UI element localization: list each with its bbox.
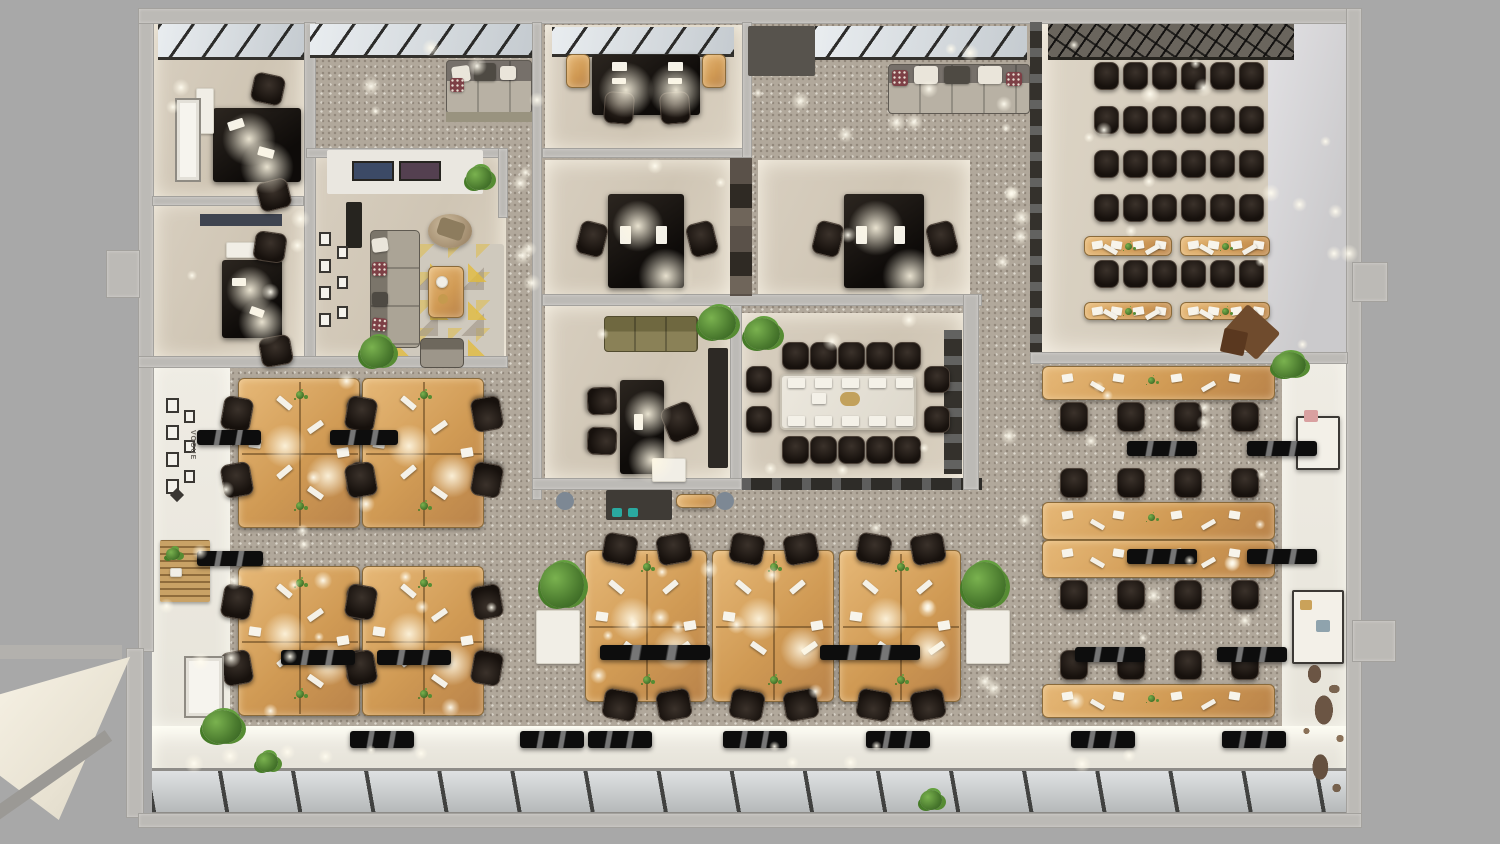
ceiling-light-5-8 <box>1084 434 1098 448</box>
training-east-wallface <box>1268 22 1352 356</box>
screen-bar-r6 <box>1217 647 1287 662</box>
ceiling-light-11-0 <box>1328 204 1343 219</box>
workstation-cluster-a4-monitor-1 <box>400 583 417 599</box>
training-chair-row-2-3 <box>1152 106 1177 134</box>
workstation-cluster-a4 <box>362 566 484 716</box>
ceiling-light-9-4 <box>262 283 280 301</box>
ceiling-light-9-2 <box>290 238 305 253</box>
ceiling-light-5-0 <box>1196 415 1212 431</box>
ceiling-light-3-12 <box>441 698 460 717</box>
ceiling-light-2-2 <box>512 174 530 192</box>
ceiling-light-0-7 <box>753 88 764 99</box>
ceiling-light-10-7 <box>836 464 848 476</box>
west-wall-frame-a-3 <box>166 452 179 467</box>
screen-bar-m2 <box>820 645 920 660</box>
ceiling-light-10-9 <box>901 312 917 328</box>
lounge-gallery-frame-a-2 <box>319 259 331 273</box>
ceiling-light-7-3 <box>191 652 210 671</box>
lounge-pillow-2 <box>372 262 387 276</box>
workstation-cluster-a2-chair-3 <box>469 395 504 434</box>
workstation-cluster-b3-chair-4 <box>908 687 947 722</box>
ceiling-light-4-5 <box>656 566 668 578</box>
screen-bar-r4 <box>1247 549 1317 564</box>
ceiling-light-8-1 <box>184 754 204 774</box>
ceiling-light-0-11 <box>905 113 923 131</box>
ceiling-light-4-14 <box>808 684 823 699</box>
ceiling-light-4-8 <box>627 618 640 631</box>
office-mid-left-glow-2 <box>638 248 694 304</box>
desk-strip-right-bottom-papers-4 <box>1229 692 1241 702</box>
ceiling-light-8-4 <box>414 747 427 760</box>
ceiling-light-11-2 <box>1340 244 1359 263</box>
training-chair-row-5-2 <box>1123 260 1148 288</box>
training-chair-row-3-2 <box>1123 150 1148 178</box>
ceiling-light-2-4 <box>513 246 532 265</box>
lounge-plant-2 <box>466 166 492 190</box>
training-chair-row-3-5 <box>1210 150 1235 178</box>
training-desk-1b-papers-3 <box>1230 241 1242 251</box>
training-chair-row-1-5 <box>1210 62 1235 90</box>
room-a-cabinet-right <box>702 54 726 88</box>
ceiling-light-8-9 <box>366 745 376 755</box>
ceiling-light-4-7 <box>651 608 669 626</box>
ceiling-light-4-2 <box>727 615 746 634</box>
lounge-gallery-frame-a-4 <box>319 313 331 327</box>
lounge-coffee-table <box>428 266 464 318</box>
screen-bar-r5 <box>1075 647 1145 662</box>
ceiling-light-1-0 <box>1001 123 1011 133</box>
workstation-cluster-a2-chair-1 <box>343 395 378 434</box>
ceiling-light-3-9 <box>338 372 356 390</box>
training-desk-2a-papers-3 <box>1133 306 1145 316</box>
training-chair-row-5-3 <box>1152 260 1177 288</box>
ceiling-light-6-11 <box>1194 78 1213 97</box>
east-station-2-item-1 <box>1300 600 1312 610</box>
wall-left-outer <box>138 8 154 652</box>
ceiling-light-1-6 <box>1012 228 1029 245</box>
training-desk-1a-plant <box>1125 243 1132 250</box>
ceiling-light-3-1 <box>288 579 300 591</box>
training-chair-row-2-4 <box>1181 106 1206 134</box>
west-wall-frame-b-1 <box>184 410 195 423</box>
workstation-cluster-a1-plant-2 <box>296 502 304 510</box>
training-chair-row-5-4 <box>1181 260 1206 288</box>
chair-row-right-2-3 <box>1174 468 1202 498</box>
desk-strip-right-top-papers-1 <box>1061 374 1073 384</box>
desk-strip-right-mid-b-papers-2 <box>1112 549 1124 559</box>
skylight-training <box>1048 24 1294 60</box>
wall-room-a-bottom <box>542 148 744 158</box>
ceiling-light-0-5 <box>370 106 380 116</box>
desk-strip-right-bottom-papers-3 <box>1171 692 1183 702</box>
workstation-cluster-a1 <box>238 378 360 528</box>
office-mid-right-glow-2 <box>882 248 938 304</box>
walkway-screen-6 <box>1071 731 1135 748</box>
chair-row-right-2-1 <box>1060 468 1088 498</box>
west-wall-frame-b-3 <box>184 470 195 483</box>
screen-bar-m1 <box>600 645 710 660</box>
conference-centerpiece <box>840 392 860 406</box>
workstation-cluster-a4-chair-1 <box>343 583 378 622</box>
ceiling-light-7-1 <box>225 572 243 590</box>
desk-strip-right-mid-a-plant <box>1148 514 1155 521</box>
ceiling-light-6-8 <box>1084 132 1095 143</box>
ceiling-light-0-4 <box>361 76 381 96</box>
ceiling-light-3-6 <box>486 602 497 613</box>
ceiling-light-3-3 <box>357 495 375 513</box>
ceiling-light-6-9 <box>1125 225 1137 237</box>
ceiling-light-8-7 <box>318 749 333 764</box>
ceiling-light-8-0 <box>871 741 882 752</box>
chair-row-right-3-1 <box>1060 580 1088 610</box>
ceiling-light-6-7 <box>1255 256 1266 267</box>
tl-office-2-glow-2 <box>238 298 286 346</box>
training-chair-row-3-6 <box>1239 150 1264 178</box>
training-podium-2 <box>1220 328 1248 356</box>
conference-chair-top-4 <box>866 342 893 370</box>
room-a-glow-1 <box>598 62 654 118</box>
office-mid-left-glow-1 <box>612 200 664 252</box>
ceiling-light-3-5 <box>314 571 332 589</box>
workstation-cluster-a2-light-pool-2 <box>430 454 474 498</box>
planter-right <box>966 610 1010 664</box>
training-chair-row-3-1 <box>1094 150 1119 178</box>
training-chair-row-2-2 <box>1123 106 1148 134</box>
screen-bar-l5 <box>377 650 451 665</box>
ceiling-light-6-2 <box>1140 84 1160 104</box>
west-wall-label: VOGUE <box>186 430 196 466</box>
ceiling-light-1-4 <box>1004 185 1020 201</box>
wall-mid-divider-dark <box>730 158 752 296</box>
tl-office-2-artwork <box>200 214 282 226</box>
ceiling-light-1-7 <box>996 96 1012 112</box>
west-console-plant <box>166 548 180 560</box>
tl-office-2-chair-1 <box>252 230 288 264</box>
ceiling-light-5-12 <box>1102 390 1113 401</box>
conference-chair-left-1 <box>746 366 772 393</box>
room-a-glow-2 <box>648 62 704 118</box>
ceiling-light-7-0 <box>192 544 208 560</box>
ceiling-light-3-4 <box>306 470 321 485</box>
desk-strip-right-mid-a-papers-4 <box>1229 511 1241 521</box>
chair-row-right-2-4 <box>1231 468 1259 498</box>
desk-strip-right-top-papers-4 <box>1229 374 1241 384</box>
training-chair-row-5-5 <box>1210 260 1235 288</box>
workstation-cluster-b2-monitor-3 <box>749 641 766 656</box>
lounge-gallery-frame-b-2 <box>337 276 348 289</box>
lounge-armchair <box>420 338 464 368</box>
conference-chair-top-3 <box>838 342 865 370</box>
skylight-tl-office <box>158 24 304 60</box>
ceiling-light-3-7 <box>283 649 297 663</box>
ceiling-light-0-6 <box>887 113 906 132</box>
conference-doc <box>812 393 826 404</box>
conference-placemat-bottom-1 <box>788 416 805 426</box>
training-desk-1b-papers-1 <box>1188 241 1200 251</box>
training-chair-row-4-3 <box>1152 194 1177 222</box>
screen-bar-r2 <box>1247 441 1317 456</box>
training-desk-1b-monitor-2 <box>1242 244 1257 256</box>
workstation-cluster-a3-plant-2 <box>296 690 304 698</box>
workstation-cluster-b3-plant-2 <box>897 676 905 684</box>
manager-guest-chair-2 <box>587 426 618 455</box>
lounge-gallery-frame-a-1 <box>319 232 331 246</box>
workstation-cluster-b3 <box>839 550 961 702</box>
ceiling-light-6-3 <box>1143 175 1155 187</box>
conference-placemat-top-4 <box>869 378 886 388</box>
ceiling-light-11-1 <box>1297 339 1308 350</box>
chair-row-right-1-2 <box>1117 402 1145 432</box>
workstation-cluster-b2-chair-3 <box>728 687 767 722</box>
floorplan-render: VOGUE <box>0 0 1500 844</box>
tl-office-1-glow-2 <box>240 140 294 194</box>
wall-tab-left <box>106 250 140 298</box>
ceiling-light-6-10 <box>1292 197 1308 213</box>
workstation-cluster-a2-chair-4 <box>469 461 504 500</box>
workstation-cluster-a2-plant-2 <box>420 502 428 510</box>
training-chair-row-5-1 <box>1094 260 1119 288</box>
screen-bar-l2 <box>330 430 398 445</box>
workstation-cluster-a2-monitor-3 <box>431 420 448 435</box>
corridor-pillow-4 <box>978 66 1002 84</box>
conference-chair-bottom-5 <box>894 436 921 464</box>
conference-placemat-top-3 <box>842 378 859 388</box>
manager-plant <box>698 306 736 340</box>
desk-strip-right-mid-b-monitor-2 <box>1201 557 1216 569</box>
ceiling-light-4-15 <box>1017 513 1031 527</box>
conference-plant <box>744 318 780 350</box>
workstation-cluster-b2-chair-1 <box>728 531 767 566</box>
chair-row-right-1-4 <box>1231 402 1259 432</box>
ceiling-light-0-10 <box>837 126 854 143</box>
desk-strip-right-top-papers-2 <box>1112 374 1124 384</box>
ceiling-light-5-7 <box>1138 633 1148 643</box>
west-console-item <box>170 568 182 577</box>
workstation-cluster-a4-plant-1 <box>420 579 428 587</box>
wall-conference-bottom-glass <box>742 478 982 490</box>
ceiling-light-10-2 <box>919 443 929 453</box>
planter-left-plant <box>540 562 584 608</box>
ceiling-light-0-0 <box>529 92 545 108</box>
walkway-plant-left <box>202 710 242 744</box>
wall-lounge-right-stub <box>498 148 508 218</box>
conference-chair-bottom-2 <box>810 436 837 464</box>
training-desk-1a-papers-3 <box>1133 241 1145 251</box>
training-desk-2b-papers-1 <box>1188 306 1200 316</box>
ceiling-light-5-9 <box>1184 555 1196 567</box>
wall-tl-block-right <box>304 22 316 360</box>
desk-strip-right-bottom-plant <box>1148 695 1155 702</box>
training-desk-2a <box>1084 302 1172 320</box>
workstation-cluster-b2-chair-2 <box>781 531 820 566</box>
reception-shelf <box>446 112 532 122</box>
credenza-bin-1 <box>612 508 622 517</box>
wall-left-lower <box>126 648 144 818</box>
desk-strip-right-bottom-papers-2 <box>1112 692 1124 702</box>
training-desk-1b-plant <box>1222 243 1229 250</box>
glass-floor-corridor <box>152 768 1348 814</box>
ceiling-light-6-0 <box>1069 40 1079 50</box>
workstation-cluster-a2-monitor-1 <box>400 395 417 411</box>
training-chair-row-4-1 <box>1094 194 1119 222</box>
ceiling-light-5-11 <box>1066 692 1085 711</box>
ceiling-light-4-3 <box>763 566 782 585</box>
ceiling-light-0-9 <box>422 39 440 57</box>
desk-strip-right-bottom-monitor-2 <box>1201 699 1216 711</box>
ceiling-light-1-5 <box>1012 208 1030 226</box>
ceiling-light-0-8 <box>945 43 957 55</box>
corridor-pillow-1 <box>892 70 908 86</box>
corridor-stool-1 <box>556 492 574 510</box>
workstation-cluster-a1-light-pool-1 <box>263 424 307 468</box>
ceiling-light-4-11 <box>700 560 718 578</box>
ceiling-light-10-5 <box>596 328 608 340</box>
planter-left <box>536 610 580 664</box>
ceiling-light-7-2 <box>218 481 235 498</box>
desk-strip-right-bottom-monitor-1 <box>1089 699 1104 711</box>
corridor-pillow-3 <box>944 66 970 84</box>
lounge-table-plant <box>438 294 448 304</box>
desk-strip-right-mid-a-papers-2 <box>1112 511 1124 521</box>
workstation-cluster-b1-papers-1 <box>595 611 608 622</box>
desk-strip-right-mid-b-papers-1 <box>1061 549 1073 559</box>
manager-glow-2 <box>628 436 676 484</box>
workstation-cluster-b1-chair-2 <box>654 531 693 566</box>
manager-guest-chair-1 <box>587 386 618 415</box>
ceiling-light-10-3 <box>715 177 726 188</box>
ceiling-light-1-3 <box>995 254 1011 270</box>
training-chair-row-4-4 <box>1181 194 1206 222</box>
east-station-2-item-2 <box>1316 620 1330 632</box>
workstation-cluster-b2-monitor-1 <box>735 580 752 596</box>
workstation-cluster-b3-plant-1 <box>897 563 905 571</box>
planter-right-plant <box>962 562 1006 608</box>
ceiling-light-4-13 <box>671 620 685 634</box>
wall-conference-right <box>963 294 979 490</box>
ceiling-light-8-8 <box>280 744 295 759</box>
lounge-plant-1 <box>360 336 394 368</box>
tl-office-1-chair-1 <box>249 71 287 107</box>
wall-tab-right-1 <box>1352 262 1388 302</box>
chair-row-right-4-3 <box>1174 650 1202 680</box>
ceiling-light-5-13 <box>1145 587 1162 604</box>
corner-step <box>0 645 122 659</box>
training-chair-row-4-2 <box>1123 194 1148 222</box>
ceiling-light-11-3 <box>1320 136 1331 147</box>
wall-bottom-outer <box>138 813 1362 828</box>
ceiling-light-4-12 <box>590 667 607 684</box>
reception-pillow-4 <box>450 78 464 92</box>
east-station-1-item <box>1304 410 1318 422</box>
conference-placemat-bottom-3 <box>842 416 859 426</box>
skylight-corridor-left <box>310 24 532 58</box>
ceiling-light-0-2 <box>961 44 980 63</box>
conference-chair-bottom-3 <box>838 436 865 464</box>
conference-placemat-bottom-2 <box>815 416 832 426</box>
corridor-stool-2 <box>716 492 734 510</box>
conference-placemat-bottom-4 <box>869 416 886 426</box>
training-chair-row-4-6 <box>1239 194 1264 222</box>
ceiling-light-9-5 <box>166 100 180 114</box>
workstation-cluster-b3-monitor-1 <box>862 580 879 596</box>
lounge-tv <box>346 202 362 248</box>
ceiling-light-5-4 <box>1256 469 1268 481</box>
room-a-cabinet-left <box>566 54 590 88</box>
desk-strip-right-mid-a-monitor-2 <box>1201 519 1216 531</box>
chair-row-right-3-2 <box>1117 580 1145 610</box>
ceiling-light-0-3 <box>467 56 487 76</box>
lounge-pillow-4 <box>371 317 387 331</box>
conference-placemat-top-2 <box>815 378 832 388</box>
desk-strip-right-top-papers-3 <box>1171 374 1183 384</box>
ceiling-light-3-13 <box>298 538 311 551</box>
west-wall-frame-a-1 <box>166 398 179 413</box>
workstation-cluster-b1-monitor-2 <box>662 580 679 596</box>
ceiling-light-5-10 <box>1198 401 1211 414</box>
lounge-table-bowl <box>436 276 448 288</box>
ceiling-light-4-6 <box>603 630 613 640</box>
conference-chair-bottom-1 <box>782 436 809 464</box>
ceiling-light-8-3 <box>769 741 780 752</box>
workstation-cluster-b1-chair-4 <box>654 687 693 722</box>
corridor-side-table <box>676 494 716 508</box>
workstation-cluster-b3-light-pool-1 <box>864 597 908 641</box>
ceiling-light-6-5 <box>1096 122 1112 138</box>
ceiling-light-7-5 <box>159 598 174 613</box>
ceiling-light-10-4 <box>920 80 938 98</box>
training-desk-1b <box>1180 236 1270 256</box>
ceiling-light-10-1 <box>647 158 663 174</box>
desk-strip-right-top-plant <box>1148 377 1155 384</box>
workstation-cluster-a1-plant-1 <box>296 391 304 399</box>
manager-wardrobe <box>708 348 728 468</box>
conference-chair-left-2 <box>746 406 772 433</box>
workstation-cluster-a2 <box>362 378 484 528</box>
wall-tab-right-2 <box>1352 620 1396 662</box>
ceiling-light-8-5 <box>1073 755 1091 773</box>
training-chair-row-2-5 <box>1210 106 1235 134</box>
ceiling-light-9-1 <box>172 79 189 96</box>
workstation-cluster-a2-plant-1 <box>420 391 428 399</box>
training-desk-1a <box>1084 236 1172 256</box>
screen-bar-r1 <box>1127 441 1197 456</box>
training-desk-2a-plant <box>1125 308 1132 315</box>
ceiling-light-9-0 <box>291 209 310 228</box>
ceiling-light-10-6 <box>764 462 777 475</box>
workstation-cluster-b1-monitor-1 <box>608 580 625 596</box>
training-chair-row-4-5 <box>1210 194 1235 222</box>
training-chair-row-1-1 <box>1094 62 1119 90</box>
chair-row-right-3-3 <box>1174 580 1202 610</box>
training-chair-row-1-6 <box>1239 62 1264 90</box>
workstation-cluster-b1-chair-3 <box>601 687 640 722</box>
desk-strip-right-top <box>1042 366 1275 400</box>
ceiling-light-3-10 <box>263 704 277 718</box>
ceiling-light-8-6 <box>1122 749 1136 763</box>
ceiling-light-3-8 <box>296 524 309 537</box>
workstation-cluster-a1-monitor-1 <box>276 395 293 411</box>
lounge-gallery-frame-b-1 <box>337 246 348 259</box>
desk-strip-right-mid-a <box>1042 502 1275 540</box>
workstation-cluster-b3-papers-1 <box>849 611 862 622</box>
workstation-cluster-a3-papers-1 <box>248 626 261 637</box>
chair-row-right-2-2 <box>1117 468 1145 498</box>
walkway-screen-7 <box>1222 731 1286 748</box>
corridor-cabinet <box>748 26 815 76</box>
desk-strip-right-mid-a-papers-1 <box>1061 511 1073 521</box>
workstation-cluster-a4-chair-4 <box>469 649 504 688</box>
conference-chair-top-5 <box>894 342 921 370</box>
